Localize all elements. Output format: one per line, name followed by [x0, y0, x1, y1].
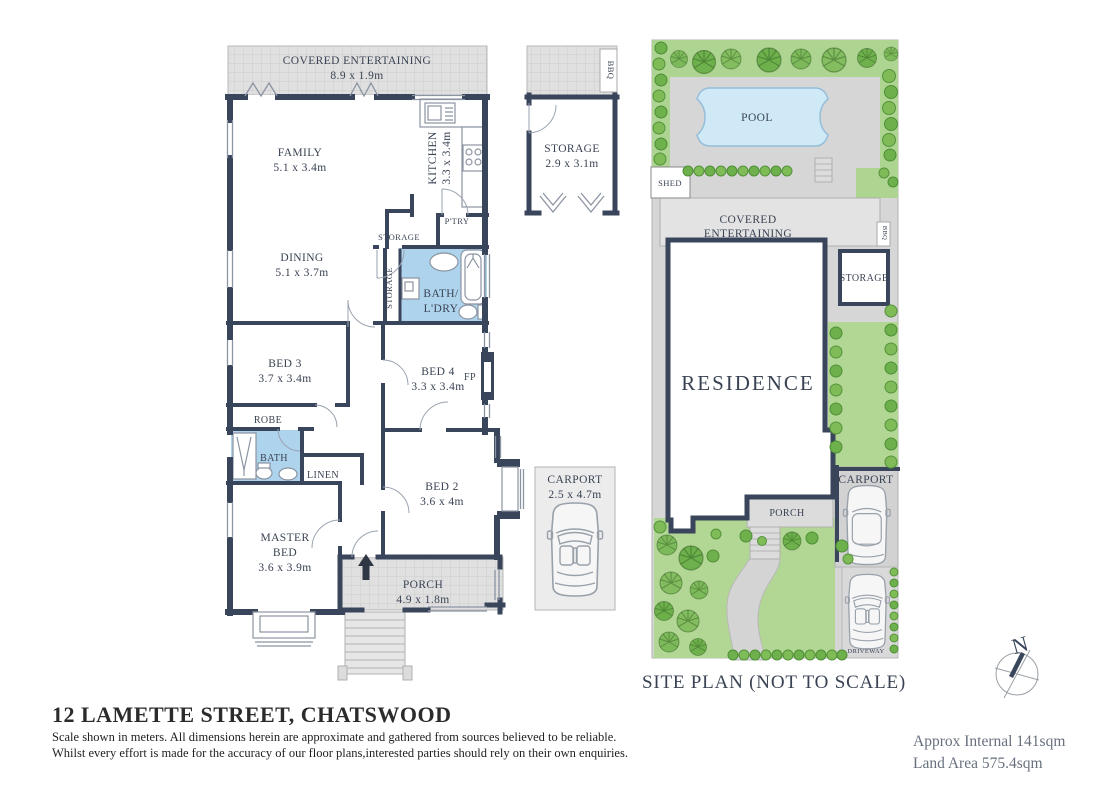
kitchen-dims: 3.3 x 3.4m — [441, 131, 453, 184]
footer: 12 LAMETTE STREET, CHATSWOOD Scale shown… — [52, 702, 1065, 772]
family-label: FAMILY — [278, 147, 323, 159]
site-driveway-car-icon — [845, 574, 889, 648]
site-storage-label: STORAGE — [840, 273, 889, 284]
bbq-label: BBQ — [606, 61, 616, 80]
external-storage-dims: 2.9 x 3.1m — [545, 158, 598, 170]
site-covered-label-2: ENTERTAINING — [704, 228, 792, 240]
compass-icon: N — [995, 631, 1039, 698]
robe-label: ROBE — [254, 415, 282, 426]
bed3-label: BED 3 — [268, 358, 302, 370]
floor-plan: COVERED ENTERTAINING 8.9 x 1.9m FAMILY 5… — [228, 46, 618, 680]
site-plan: POOL SHED COVERED ENTERTAINING BBQ STORA… — [642, 40, 906, 693]
master-bay-window — [253, 612, 315, 646]
covered-entertaining-dims: 8.9 x 1.9m — [330, 70, 383, 82]
fireplace-label: FP — [464, 372, 476, 383]
dining-dims: 5.1 x 3.7m — [275, 267, 328, 279]
car-icon — [548, 503, 603, 596]
dining-label: DINING — [280, 252, 323, 264]
site-driveway-label: DRIVEWAY — [847, 648, 884, 655]
bath-laundry-label-2: L'DRY — [424, 303, 459, 315]
pantry-label: P'TRY — [445, 216, 470, 226]
storage-hall-label: STORAGE — [378, 232, 420, 242]
site-bbq-label: BBQ — [881, 226, 888, 241]
disclaimer-line-2: Whilst every effort is made for the accu… — [52, 746, 628, 760]
linen-label: LINEN — [307, 470, 339, 481]
master-bed-label-1: MASTER — [260, 532, 309, 544]
disclaimer-line-1: Scale shown in meters. All dimensions he… — [52, 730, 616, 744]
master-bed-dims: 3.6 x 3.9m — [258, 562, 311, 574]
compass-north-label: N — [1009, 631, 1031, 659]
external-storage-label: STORAGE — [544, 143, 600, 155]
land-area: Land Area 575.4sqm — [913, 755, 1043, 772]
bed4-label: BED 4 — [421, 366, 455, 378]
family-dims: 5.1 x 3.4m — [273, 162, 326, 174]
floorplan-image: COVERED ENTERTAINING 8.9 x 1.9m FAMILY 5… — [0, 0, 1120, 791]
carport-label: CARPORT — [547, 474, 602, 486]
covered-entertaining-label: COVERED ENTERTAINING — [283, 55, 432, 67]
entry-steps — [338, 612, 412, 680]
kitchen-label: KITCHEN — [427, 131, 439, 185]
residence-label: RESIDENCE — [681, 371, 815, 395]
shed-label: SHED — [658, 178, 682, 188]
bed2-label: BED 2 — [425, 481, 459, 493]
storage-passage-label: STORAGE — [384, 267, 394, 309]
master-bed-label-2: BED — [273, 547, 297, 559]
bed2-bay-window — [497, 459, 524, 519]
bed3-dims: 3.7 x 3.4m — [258, 373, 311, 385]
site-carport-label: CARPORT — [838, 474, 893, 486]
address-title: 12 LAMETTE STREET, CHATSWOOD — [52, 702, 451, 727]
approx-internal-area: Approx Internal 141sqm — [913, 733, 1065, 750]
site-covered-label-1: COVERED — [719, 214, 776, 226]
bath-label: BATH — [260, 453, 288, 464]
bed4-dims: 3.3 x 3.4m — [411, 381, 464, 393]
bed2-dims: 3.6 x 4m — [420, 496, 464, 508]
porch-dims: 4.9 x 1.8m — [396, 594, 449, 606]
pool-label: POOL — [741, 112, 773, 124]
bath-laundry-label-1: BATH/ — [423, 288, 459, 300]
porch-label: PORCH — [403, 579, 443, 591]
carport-dims: 2.5 x 4.7m — [548, 489, 601, 501]
fireplace — [481, 352, 494, 400]
pool-steps — [815, 158, 832, 182]
site-porch-label: PORCH — [769, 508, 804, 519]
site-carport-car-icon — [843, 486, 890, 565]
site-plan-caption: SITE PLAN (NOT TO SCALE) — [642, 672, 906, 693]
